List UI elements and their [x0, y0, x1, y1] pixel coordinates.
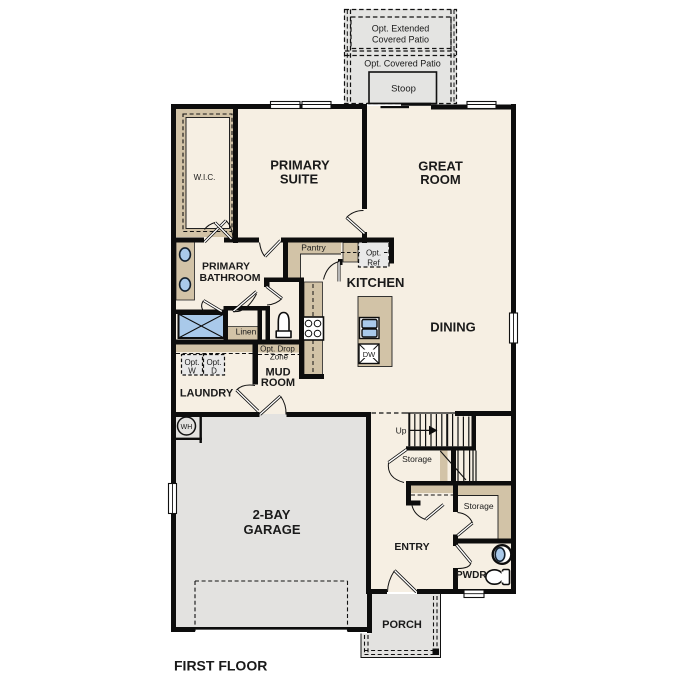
svg-text:ENTRY: ENTRY — [394, 541, 429, 553]
svg-text:GARAGE: GARAGE — [243, 522, 300, 537]
svg-text:W.I.C.: W.I.C. — [194, 173, 216, 182]
svg-text:Stoop: Stoop — [391, 84, 416, 95]
svg-text:PORCH: PORCH — [382, 619, 422, 631]
svg-text:2-BAY: 2-BAY — [253, 507, 291, 522]
svg-text:KITCHEN: KITCHEN — [347, 275, 405, 290]
svg-text:FIRST FLOOR: FIRST FLOOR — [174, 658, 267, 674]
svg-text:Storage: Storage — [402, 454, 432, 464]
svg-text:Zone: Zone — [270, 353, 289, 362]
svg-text:Covered Patio: Covered Patio — [372, 35, 429, 45]
svg-text:ROOM: ROOM — [261, 377, 295, 389]
svg-text:PWDR: PWDR — [456, 570, 487, 581]
svg-text:WH: WH — [181, 424, 193, 431]
svg-text:D: D — [211, 367, 217, 376]
svg-text:BATHROOM: BATHROOM — [199, 272, 260, 284]
svg-text:Up: Up — [396, 426, 407, 436]
svg-text:Storage: Storage — [464, 501, 494, 511]
svg-text:Pantry: Pantry — [301, 243, 326, 253]
svg-text:W: W — [188, 367, 196, 376]
svg-text:Opt. Covered Patio: Opt. Covered Patio — [364, 59, 441, 69]
svg-text:ROOM: ROOM — [420, 172, 460, 187]
svg-text:Ref: Ref — [367, 259, 380, 268]
svg-text:SUITE: SUITE — [280, 171, 319, 186]
svg-text:PRIMARY: PRIMARY — [202, 261, 250, 273]
svg-text:Linen: Linen — [236, 327, 257, 337]
svg-text:DINING: DINING — [430, 320, 476, 335]
svg-text:LAUNDRY: LAUNDRY — [180, 388, 234, 400]
svg-text:Opt. Extended: Opt. Extended — [372, 24, 430, 34]
svg-text:Opt.: Opt. — [366, 249, 381, 258]
svg-text:DW: DW — [363, 350, 376, 359]
